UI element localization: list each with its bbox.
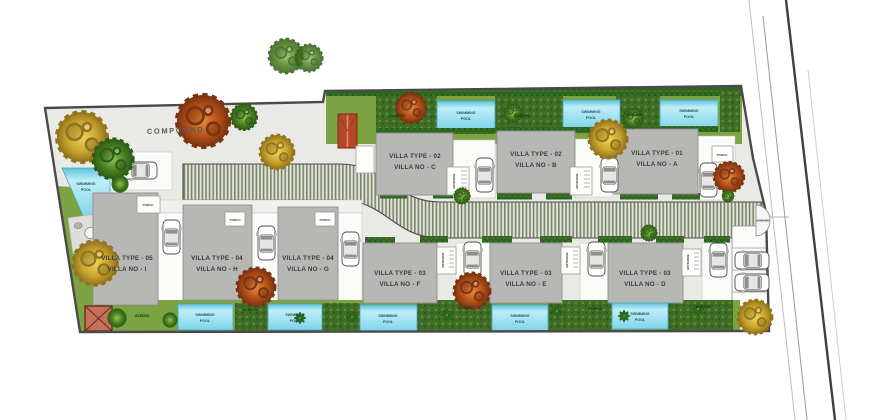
car (600, 158, 620, 192)
villa-i-no: VILLA NO - I (108, 266, 147, 273)
villa-d-type: VILLA TYPE - 03 (619, 270, 671, 277)
villa-f-no: VILLA NO - F (380, 281, 421, 288)
tree-orange (177, 95, 229, 147)
tree-orange (237, 268, 275, 306)
car (735, 251, 769, 271)
pool-label: POOL (81, 188, 92, 192)
villa-b-type: VILLA TYPE - 02 (510, 151, 562, 158)
road-hedge (598, 236, 632, 243)
villa-d-no: VILLA NO - D (624, 281, 666, 288)
villa-b-no: VILLA NO - B (515, 162, 557, 169)
garden-label: GARDEN (515, 114, 530, 118)
villa-e-no: VILLA NO - E (505, 281, 546, 288)
pool-label: SWIMMING (679, 109, 698, 113)
bush (112, 176, 128, 192)
tree-yellow (73, 241, 117, 285)
red-roof-structure (338, 114, 357, 148)
pool-villa-c (437, 101, 495, 129)
tree-green (454, 188, 470, 204)
road-hedge (704, 236, 730, 243)
garden-label: GARDEN (135, 314, 150, 318)
villa-g-type: VILLA TYPE - 04 (282, 255, 334, 262)
porch-label: PORCH (320, 218, 331, 222)
villa-a-no: VILLA NO - A (636, 161, 678, 168)
porch-label: PORCH (717, 153, 728, 157)
villa-f-type: VILLA TYPE - 03 (374, 270, 426, 277)
pool-label: SWIMMING (581, 110, 600, 114)
villa-compound-site-plan: COMPOUND VILLA TYPE - 02 VILLA NO - C VI… (0, 0, 870, 420)
pool-label: POOL (684, 115, 695, 119)
villa-g-no: VILLA NO - G (287, 266, 329, 273)
bush (163, 313, 177, 327)
pool-label: POOL (586, 116, 597, 120)
garden-label: GARDEN (588, 307, 603, 311)
garden-label: GARDEN (243, 308, 258, 312)
entrance-label: ENTRANCE (686, 254, 690, 269)
garden-label: GARDEN (627, 113, 642, 117)
palm-icon (346, 311, 358, 323)
villa-c-no: VILLA NO - C (394, 164, 436, 171)
tree-orange (396, 93, 426, 123)
porch-label: PORCH (143, 203, 154, 207)
tree-green (504, 104, 522, 122)
tree-green (93, 139, 133, 179)
road-hedge (497, 193, 532, 200)
tree-green (641, 225, 657, 241)
road-hedge (546, 193, 572, 200)
car (735, 273, 769, 293)
pool-villa-h (178, 304, 233, 330)
pool-label: SWIMMING (510, 314, 529, 318)
car (709, 243, 729, 277)
pool-label: SWIMMING (285, 313, 304, 317)
villa-h-type: VILLA TYPE - 04 (191, 255, 243, 262)
car (587, 242, 607, 276)
tree-green (623, 108, 643, 128)
porch-label: PORCH (230, 218, 241, 222)
tree-orange (714, 162, 744, 192)
palm-icon (618, 310, 630, 322)
entrance-label: ENTRANCE (565, 252, 569, 267)
entrance-label: ENTRANCE (452, 173, 456, 188)
pool-label: SWIMMING (630, 312, 649, 316)
garden-label: GARDEN (696, 305, 711, 309)
garden-strip-right (720, 92, 740, 132)
road-hedge (482, 236, 512, 243)
garden-label: GARDEN (458, 306, 473, 310)
car (341, 232, 361, 266)
pool-label: POOL (461, 117, 472, 121)
palm-icon (441, 309, 453, 321)
villa-c-type: VILLA TYPE - 02 (389, 153, 441, 160)
pool-villa-f (360, 305, 417, 331)
pool-label: SWIMMING (456, 111, 475, 115)
pool-label: POOL (383, 320, 394, 324)
car (475, 158, 495, 192)
tree-green (231, 104, 257, 130)
tree-yellow (260, 135, 294, 169)
palm-icon (551, 305, 563, 317)
pool-label: POOL (290, 319, 301, 323)
tree-green (296, 45, 323, 72)
villa-i-type: VILLA TYPE - 05 (101, 255, 153, 262)
road-edge-line (786, 0, 835, 420)
tree-yellow (589, 120, 627, 158)
pool-label: SWIMMING (378, 314, 397, 318)
road-hedge (365, 237, 395, 244)
utility-structure (356, 146, 374, 173)
bush (108, 309, 126, 327)
entrance-label: ENTRANCE (441, 252, 445, 267)
pool-label: POOL (515, 320, 526, 324)
pool-label: SWIMMING (76, 182, 95, 186)
pool-label: POOL (200, 319, 211, 323)
tree-orange (454, 273, 490, 309)
pool-label: POOL (635, 318, 646, 322)
site-plan-page: COMPOUND VILLA TYPE - 02 VILLA NO - C VI… (0, 0, 870, 420)
villa-e-type: VILLA TYPE - 03 (500, 270, 552, 277)
road-hedge (420, 236, 448, 243)
pool-label: SWIMMING (195, 313, 214, 317)
road-hedge (540, 236, 572, 243)
villa-a-type: VILLA TYPE - 01 (631, 150, 683, 157)
tree-yellow (738, 300, 772, 334)
road-hedge (656, 236, 684, 243)
car (257, 226, 277, 260)
tree-green (722, 190, 734, 202)
car (162, 220, 182, 254)
entrance-label: ENTRANCE (575, 173, 579, 188)
villa-h-no: VILLA NO - H (196, 266, 238, 273)
garden-label: GARDEN (391, 114, 406, 118)
pool-villa-e (492, 305, 548, 331)
car (463, 242, 483, 276)
